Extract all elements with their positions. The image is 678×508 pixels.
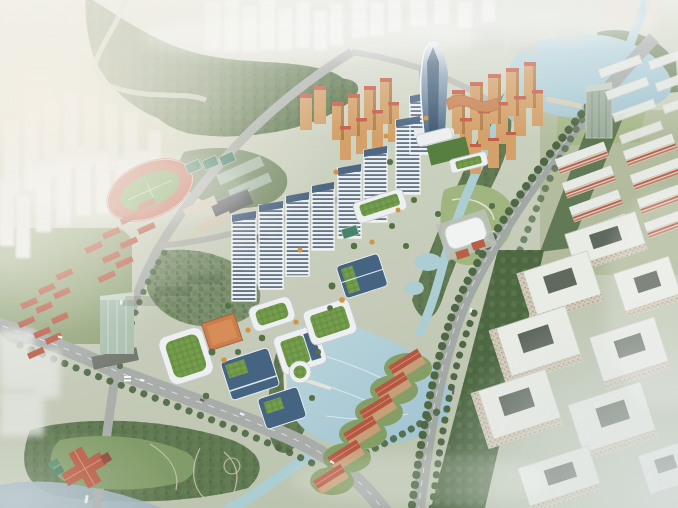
fog-overlays	[0, 0, 678, 508]
tone-wash	[0, 0, 678, 508]
aerial-render	[0, 0, 678, 508]
masterplan-rendering	[0, 0, 678, 508]
